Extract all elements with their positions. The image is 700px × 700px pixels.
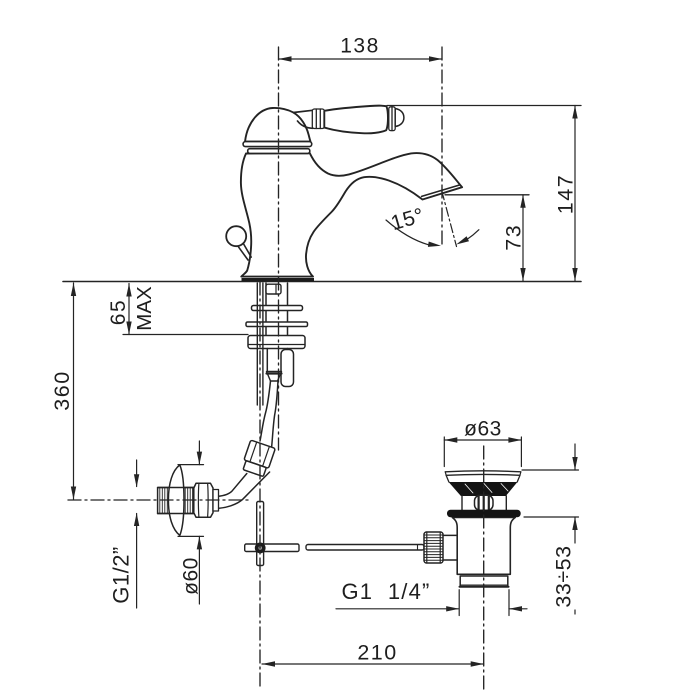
svg-text:ø60: ø60 (180, 557, 203, 595)
svg-text:65: 65 (107, 299, 130, 325)
svg-text:147: 147 (553, 174, 577, 214)
svg-text:33÷53: 33÷53 (552, 545, 576, 607)
svg-text:360: 360 (50, 370, 74, 410)
svg-text:210: 210 (357, 641, 397, 665)
svg-text:G1 1/4”: G1 1/4” (341, 579, 430, 604)
svg-text:ø63: ø63 (464, 418, 502, 441)
svg-text:138: 138 (340, 35, 380, 58)
svg-text:G1/2”: G1/2” (109, 546, 134, 604)
svg-text:15°: 15° (388, 204, 426, 235)
svg-text:MAX: MAX (133, 286, 156, 331)
svg-text:73: 73 (502, 224, 526, 251)
